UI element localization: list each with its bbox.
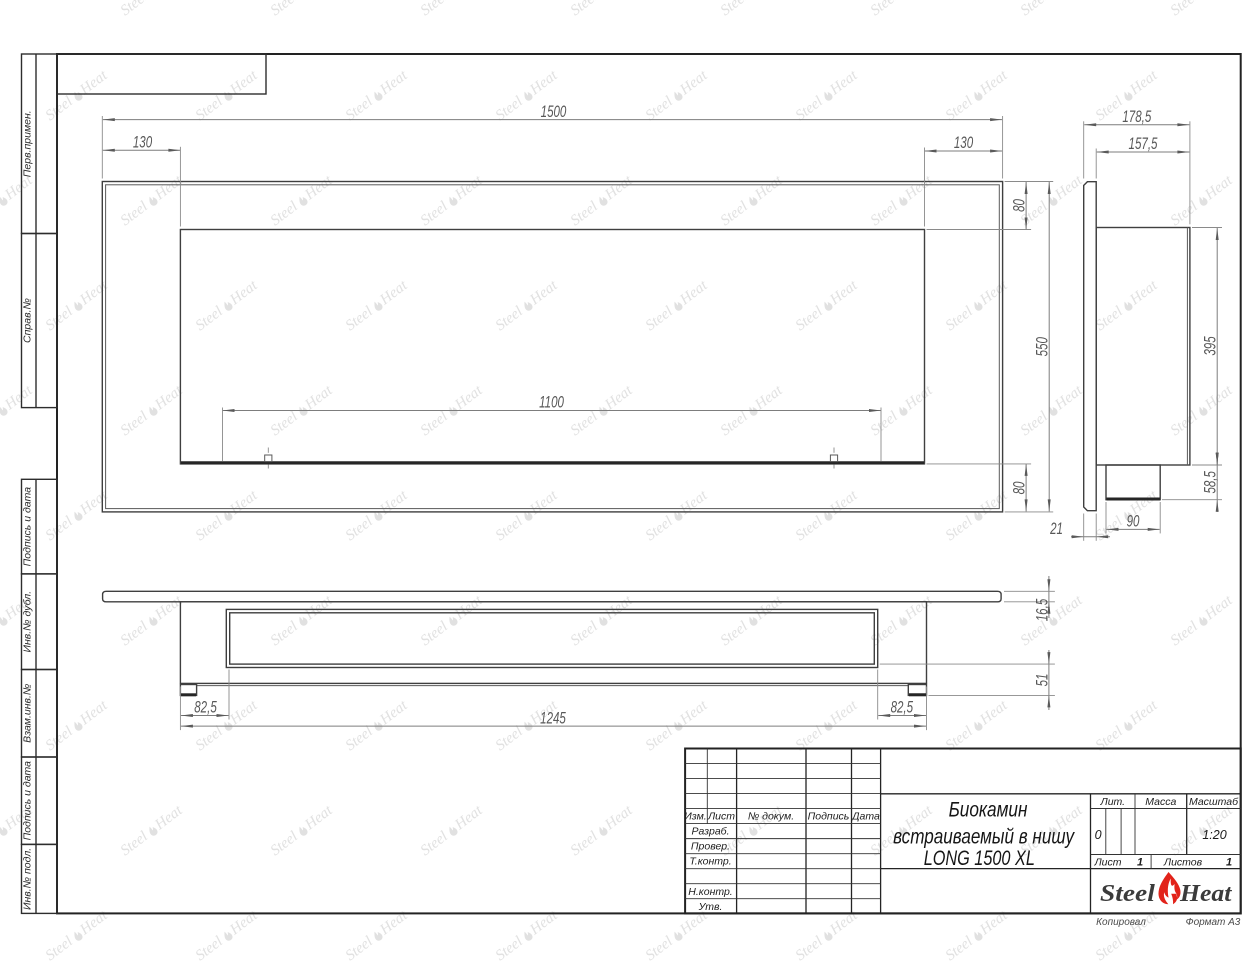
svg-text:90: 90 <box>1127 513 1140 532</box>
svg-text:130: 130 <box>954 134 973 153</box>
svg-text:80: 80 <box>1011 199 1030 212</box>
svg-text:Взам.инв.№: Взам.инв.№ <box>22 684 34 743</box>
svg-text:Изм.: Изм. <box>684 811 706 823</box>
svg-text:Формат А3: Формат А3 <box>1186 917 1241 928</box>
svg-text:Копировал: Копировал <box>1096 917 1146 928</box>
svg-text:Масса: Масса <box>1145 796 1176 808</box>
svg-text:Биокамин: Биокамин <box>949 799 1028 822</box>
svg-text:№ докум.: № докум. <box>748 811 794 823</box>
svg-text:130: 130 <box>133 134 152 153</box>
svg-text:Дата: Дата <box>851 811 880 823</box>
svg-text:82,5: 82,5 <box>194 699 217 718</box>
svg-text:16,5: 16,5 <box>1033 598 1052 621</box>
svg-text:LONG 1500 XL: LONG 1500 XL <box>924 846 1035 869</box>
svg-text:Инв.№ дубл.: Инв.№ дубл. <box>22 591 34 653</box>
svg-text:51: 51 <box>1033 674 1052 687</box>
svg-text:1: 1 <box>1226 857 1232 869</box>
svg-text:Лист: Лист <box>1093 857 1121 869</box>
svg-text:1100: 1100 <box>539 394 564 413</box>
svg-text:1245: 1245 <box>540 709 566 728</box>
svg-text:Лит.: Лит. <box>1100 796 1126 808</box>
svg-text:Провер.: Провер. <box>691 841 730 853</box>
svg-text:Подпись и дата: Подпись и дата <box>22 487 34 567</box>
svg-text:Steel: Steel <box>1100 879 1156 906</box>
svg-text:Листов: Листов <box>1163 857 1203 869</box>
svg-text:Подпись: Подпись <box>808 811 850 823</box>
svg-text:Перв.примен.: Перв.примен. <box>22 110 34 177</box>
svg-text:Н.контр.: Н.контр. <box>688 886 732 898</box>
svg-text:0: 0 <box>1095 828 1102 842</box>
svg-text:Утв.: Утв. <box>698 901 723 913</box>
svg-text:Heat: Heat <box>1179 881 1232 907</box>
svg-text:Справ.№: Справ.№ <box>22 298 34 343</box>
svg-text:1500: 1500 <box>541 103 567 122</box>
svg-text:Лист: Лист <box>707 811 735 823</box>
svg-text:80: 80 <box>1011 482 1030 495</box>
svg-text:550: 550 <box>1034 337 1053 356</box>
svg-text:Инв.№ подл.: Инв.№ подл. <box>22 848 34 910</box>
svg-text:395: 395 <box>1202 336 1221 356</box>
svg-text:1:20: 1:20 <box>1202 828 1226 842</box>
svg-text:157,5: 157,5 <box>1129 135 1159 154</box>
svg-text:Подпись и дата: Подпись и дата <box>22 761 34 841</box>
svg-text:Т.контр.: Т.контр. <box>689 856 731 868</box>
svg-text:82,5: 82,5 <box>891 699 914 718</box>
svg-text:58,5: 58,5 <box>1202 470 1221 493</box>
svg-text:Разраб.: Разраб. <box>692 826 730 838</box>
svg-text:21: 21 <box>1049 520 1063 539</box>
svg-text:178,5: 178,5 <box>1122 108 1152 127</box>
svg-text:Масштаб: Масштаб <box>1189 796 1239 808</box>
svg-text:1: 1 <box>1137 857 1143 869</box>
